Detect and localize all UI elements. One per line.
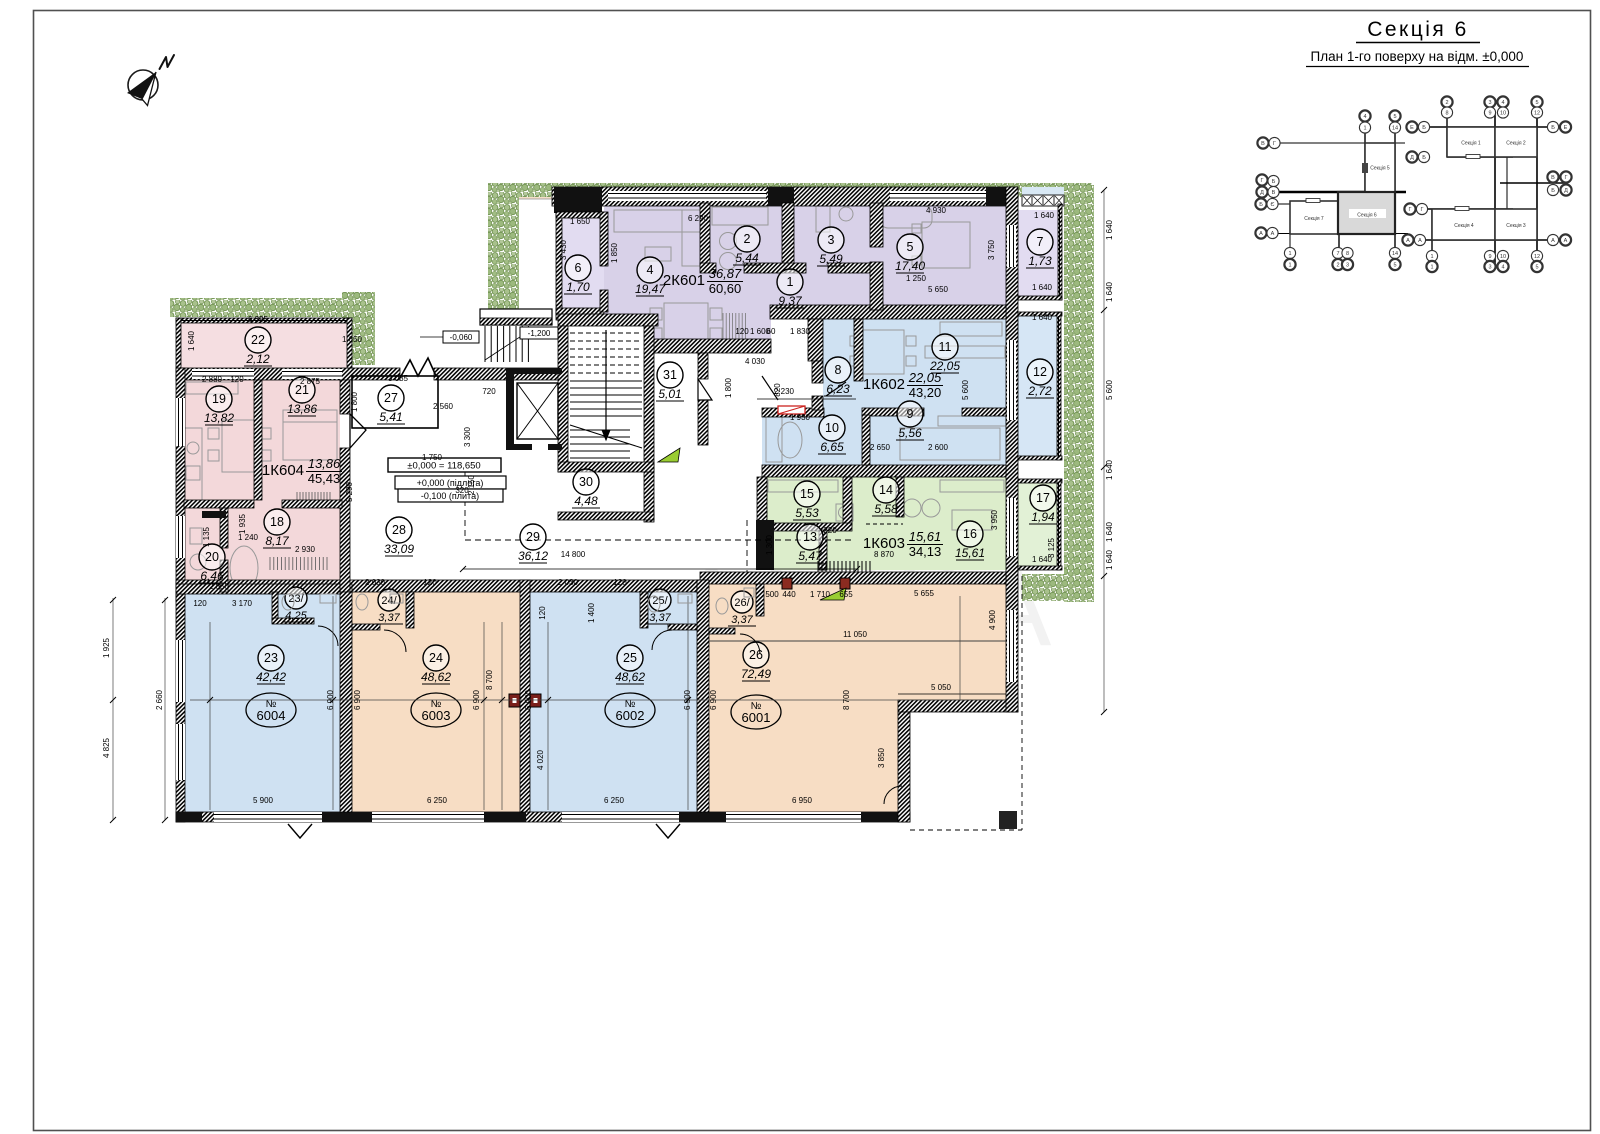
svg-text:Секція 3: Секція 3	[1506, 223, 1526, 229]
svg-text:8 700: 8 700	[485, 669, 494, 690]
svg-text:2К601: 2К601	[663, 272, 705, 289]
svg-text:3 950: 3 950	[990, 509, 999, 530]
svg-text:17,40: 17,40	[895, 259, 925, 273]
svg-text:6,23: 6,23	[826, 382, 850, 396]
svg-text:500: 500	[765, 590, 779, 599]
svg-text:Д: Д	[1564, 188, 1568, 194]
svg-text:2 660: 2 660	[155, 689, 164, 710]
svg-text:Д: Д	[1260, 190, 1264, 196]
svg-text:1 650: 1 650	[570, 217, 591, 226]
svg-text:5: 5	[1393, 263, 1396, 269]
svg-text:9: 9	[1488, 254, 1491, 260]
svg-text:8: 8	[1445, 111, 1448, 117]
svg-text:2,72: 2,72	[1027, 384, 1052, 398]
svg-text:22,05: 22,05	[908, 370, 942, 385]
svg-text:1 925: 1 925	[102, 637, 111, 658]
svg-text:6 900: 6 900	[472, 689, 481, 710]
svg-text:10: 10	[1500, 111, 1506, 117]
svg-text:Е: Е	[1410, 125, 1414, 131]
svg-text:45,43: 45,43	[308, 471, 341, 486]
svg-text:-0,060: -0,060	[450, 333, 473, 342]
svg-text:4,25: 4,25	[285, 610, 307, 622]
svg-text:2,12: 2,12	[245, 352, 270, 366]
svg-text:Г: Г	[1273, 141, 1276, 147]
svg-text:14 800: 14 800	[561, 550, 586, 559]
svg-text:720: 720	[482, 387, 496, 396]
svg-text:17: 17	[1036, 491, 1050, 505]
svg-text:Б: Б	[1551, 188, 1555, 194]
svg-text:14: 14	[1392, 251, 1398, 257]
svg-text:25/: 25/	[652, 595, 668, 607]
svg-text:6,65: 6,65	[820, 440, 844, 454]
svg-text:19: 19	[212, 392, 226, 406]
svg-text:А: А	[1551, 238, 1555, 244]
svg-text:В: В	[1261, 141, 1265, 147]
svg-text:120: 120	[193, 599, 207, 608]
svg-text:4 900: 4 900	[988, 609, 997, 630]
svg-text:6 250: 6 250	[427, 796, 448, 805]
svg-text:26/: 26/	[734, 597, 750, 609]
svg-text:1 135: 1 135	[202, 526, 211, 547]
svg-text:В: В	[1551, 175, 1555, 181]
svg-text:2: 2	[1336, 263, 1339, 269]
svg-text:6002: 6002	[616, 708, 645, 723]
svg-text:48,62: 48,62	[421, 670, 451, 684]
svg-text:1: 1	[1430, 265, 1433, 271]
svg-text:5 900: 5 900	[253, 796, 274, 805]
svg-text:6003: 6003	[422, 708, 451, 723]
svg-text:3 300: 3 300	[463, 426, 472, 447]
svg-text:5,47: 5,47	[798, 549, 823, 563]
svg-text:5: 5	[1535, 265, 1538, 271]
svg-text:820: 820	[773, 383, 782, 397]
svg-text:120: 120	[230, 375, 244, 384]
svg-text:120: 120	[613, 578, 627, 587]
svg-text:5,49: 5,49	[819, 252, 843, 266]
svg-text:22: 22	[251, 333, 265, 347]
svg-text:2 850: 2 850	[209, 582, 230, 591]
svg-text:2 560: 2 560	[433, 402, 454, 411]
svg-text:1 640: 1 640	[1034, 211, 1055, 220]
svg-text:34,13: 34,13	[909, 544, 942, 559]
svg-text:7: 7	[1037, 235, 1044, 249]
svg-text:4: 4	[1501, 265, 1504, 271]
svg-text:14: 14	[879, 483, 893, 497]
svg-text:5,58: 5,58	[874, 502, 898, 516]
svg-text:1: 1	[1288, 251, 1291, 257]
svg-text:6 290: 6 290	[688, 214, 709, 223]
svg-text:1 640: 1 640	[1032, 283, 1053, 292]
svg-text:4,48: 4,48	[574, 494, 598, 508]
svg-text:5: 5	[907, 240, 914, 254]
svg-text:6 250: 6 250	[604, 796, 625, 805]
svg-text:36,87: 36,87	[709, 266, 742, 281]
svg-text:6 950: 6 950	[792, 796, 813, 805]
svg-text:4 825: 4 825	[102, 737, 111, 758]
svg-text:3,37: 3,37	[649, 612, 671, 624]
svg-text:72,49: 72,49	[741, 667, 771, 681]
svg-text:5,01: 5,01	[658, 387, 681, 401]
svg-text:Д: Д	[1410, 155, 1414, 161]
svg-text:6 900: 6 900	[709, 689, 718, 710]
svg-text:440: 440	[782, 590, 796, 599]
svg-text:6 900: 6 900	[353, 689, 362, 710]
svg-text:15,61: 15,61	[909, 529, 942, 544]
svg-text:3 125: 3 125	[1047, 537, 1056, 558]
svg-text:Секція 6: Секція 6	[1357, 213, 1377, 219]
svg-text:1 935: 1 935	[238, 513, 247, 534]
svg-text:6,46: 6,46	[200, 569, 224, 583]
svg-text:1: 1	[1363, 126, 1366, 132]
svg-text:10: 10	[825, 421, 839, 435]
svg-text:1 830: 1 830	[790, 327, 811, 336]
svg-text:1 640: 1 640	[187, 330, 196, 351]
svg-text:15: 15	[800, 487, 814, 501]
svg-text:25: 25	[623, 651, 637, 665]
svg-text:120: 120	[423, 578, 437, 587]
svg-text:Секція 4: Секція 4	[1454, 223, 1474, 229]
svg-text:10: 10	[1500, 254, 1506, 260]
svg-text:А: А	[1564, 238, 1568, 244]
svg-text:Б: Б	[1551, 125, 1555, 131]
svg-text:В: В	[1272, 190, 1276, 196]
svg-text:6 900: 6 900	[326, 689, 335, 710]
svg-text:13,82: 13,82	[204, 411, 234, 425]
svg-text:14: 14	[1392, 126, 1398, 132]
svg-text:12: 12	[1534, 111, 1540, 117]
svg-text:26: 26	[749, 648, 763, 662]
svg-text:1 800: 1 800	[724, 377, 733, 398]
svg-text:3 850: 3 850	[877, 747, 886, 768]
svg-text:1 640: 1 640	[1105, 459, 1114, 480]
svg-text:Секція 7: Секція 7	[1304, 216, 1324, 222]
svg-text:1,70: 1,70	[566, 280, 590, 294]
svg-text:2 030: 2 030	[558, 578, 579, 587]
svg-text:Секція 2: Секція 2	[1506, 141, 1526, 147]
svg-text:5 650: 5 650	[928, 285, 949, 294]
svg-text:33,09: 33,09	[384, 542, 414, 556]
svg-text:5 600: 5 600	[1105, 379, 1114, 400]
svg-text:8 870: 8 870	[874, 550, 895, 559]
svg-text:31: 31	[663, 368, 677, 382]
svg-text:5,56: 5,56	[898, 426, 922, 440]
svg-text:220: 220	[823, 526, 837, 535]
svg-text:19,47: 19,47	[635, 282, 666, 296]
svg-text:Секція 6: Секція 6	[1367, 18, 1469, 41]
svg-text:2 875: 2 875	[300, 377, 321, 386]
svg-text:320: 320	[455, 486, 469, 495]
svg-text:±0,000 = 118,650: ±0,000 = 118,650	[407, 461, 480, 472]
svg-text:-1,200: -1,200	[528, 329, 551, 338]
svg-text:12: 12	[1033, 365, 1047, 379]
svg-text:18: 18	[270, 515, 284, 529]
svg-text:5 290: 5 290	[345, 481, 354, 502]
svg-text:План 1-го поверху на відм. ±0,: План 1-го поверху на відм. ±0,000	[1311, 49, 1524, 64]
svg-text:Г: Г	[1565, 175, 1568, 181]
svg-text:2 600: 2 600	[928, 443, 949, 452]
svg-text:1 710: 1 710	[810, 590, 831, 599]
svg-text:3 430: 3 430	[559, 239, 568, 260]
svg-text:2: 2	[1445, 100, 1448, 106]
svg-text:1: 1	[1430, 254, 1433, 260]
svg-text:Б: Б	[1422, 125, 1426, 131]
svg-text:Г: Г	[1409, 207, 1412, 213]
svg-text:1: 1	[787, 275, 794, 289]
svg-text:1: 1	[1288, 263, 1291, 269]
svg-text:1 300: 1 300	[765, 534, 774, 555]
svg-text:6 900: 6 900	[683, 689, 692, 710]
svg-text:3: 3	[828, 233, 835, 247]
svg-text:9: 9	[1488, 111, 1491, 117]
svg-text:20: 20	[205, 550, 219, 564]
svg-text:Е: Е	[1564, 125, 1568, 131]
svg-text:4 020: 4 020	[536, 749, 545, 770]
svg-text:8: 8	[1346, 251, 1349, 257]
svg-text:60: 60	[767, 327, 776, 336]
svg-text:8,17: 8,17	[265, 534, 290, 548]
svg-text:27: 27	[384, 391, 398, 405]
svg-text:Секція 5: Секція 5	[1370, 166, 1390, 172]
svg-text:120: 120	[538, 606, 547, 620]
svg-text:3 035: 3 035	[388, 374, 409, 383]
svg-text:4: 4	[1363, 114, 1366, 120]
svg-text:1,94: 1,94	[1031, 510, 1055, 524]
svg-text:8: 8	[835, 363, 842, 377]
svg-text:5 600: 5 600	[961, 379, 970, 400]
svg-text:Секція 1: Секція 1	[1461, 141, 1481, 147]
svg-text:13,86: 13,86	[287, 402, 317, 416]
svg-text:655: 655	[839, 590, 853, 599]
svg-text:А: А	[1259, 231, 1263, 237]
svg-text:5,53: 5,53	[795, 506, 819, 520]
svg-text:36,12: 36,12	[518, 549, 548, 563]
svg-text:Б: Б	[1422, 155, 1426, 161]
svg-text:1 640: 1 640	[1105, 219, 1114, 240]
svg-text:1К602: 1К602	[863, 376, 905, 393]
svg-text:43,20: 43,20	[909, 385, 942, 400]
svg-text:6 900: 6 900	[524, 689, 533, 710]
svg-text:1 800: 1 800	[350, 391, 359, 412]
svg-text:7: 7	[1336, 251, 1339, 257]
svg-text:1 850: 1 850	[610, 242, 619, 263]
svg-text:42,42: 42,42	[256, 670, 286, 684]
svg-text:16: 16	[963, 527, 977, 541]
svg-text:1 400: 1 400	[587, 602, 596, 623]
svg-text:2: 2	[744, 232, 751, 246]
svg-text:4 030: 4 030	[745, 357, 766, 366]
svg-text:4: 4	[647, 263, 654, 277]
svg-text:6: 6	[575, 261, 582, 275]
svg-text:А: А	[1271, 231, 1275, 237]
svg-text:28: 28	[392, 523, 406, 537]
svg-text:11 050: 11 050	[843, 630, 867, 639]
svg-text:3 170: 3 170	[232, 599, 253, 608]
svg-text:60,60: 60,60	[709, 281, 742, 296]
svg-text:1 750: 1 750	[422, 453, 443, 462]
svg-text:11: 11	[939, 340, 952, 354]
svg-text:23: 23	[264, 651, 278, 665]
svg-text:12: 12	[1534, 254, 1540, 260]
svg-text:1 640: 1 640	[1105, 521, 1114, 542]
svg-text:Г: Г	[1261, 178, 1264, 184]
svg-text:6001: 6001	[742, 710, 771, 725]
svg-text:5 655: 5 655	[914, 589, 935, 598]
svg-text:120: 120	[735, 327, 749, 336]
svg-text:3: 3	[1488, 265, 1491, 271]
svg-text:24: 24	[429, 651, 443, 665]
svg-text:9: 9	[907, 407, 914, 421]
svg-text:3: 3	[1346, 263, 1349, 269]
svg-text:Б: Б	[1272, 179, 1276, 185]
svg-text:4: 4	[1501, 100, 1504, 106]
svg-text:5: 5	[1393, 114, 1396, 120]
svg-text:13,86: 13,86	[308, 456, 341, 471]
svg-text:1 250: 1 250	[906, 274, 927, 283]
svg-text:1 930: 1 930	[790, 413, 811, 422]
svg-text:4 930: 4 930	[926, 206, 947, 215]
svg-text:8 700: 8 700	[842, 689, 851, 710]
svg-text:5,44: 5,44	[735, 251, 759, 265]
svg-text:3 750: 3 750	[987, 239, 996, 260]
svg-text:Б: Б	[1259, 202, 1263, 208]
svg-text:30: 30	[579, 475, 593, 489]
svg-text:5 050: 5 050	[931, 683, 952, 692]
svg-text:1К604: 1К604	[262, 462, 304, 479]
svg-text:А: А	[1418, 238, 1422, 244]
svg-text:А: А	[1406, 238, 1410, 244]
svg-text:1,73: 1,73	[1028, 254, 1052, 268]
svg-text:3,37: 3,37	[731, 614, 753, 626]
svg-text:1 640: 1 640	[1105, 281, 1114, 302]
svg-text:Є: Є	[1271, 202, 1275, 208]
svg-text:9,37: 9,37	[778, 294, 803, 308]
svg-text:1 640: 1 640	[1105, 549, 1114, 570]
svg-text:3: 3	[1488, 100, 1491, 106]
svg-text:3,37: 3,37	[378, 612, 400, 624]
svg-text:13: 13	[803, 530, 817, 544]
svg-text:6 395: 6 395	[248, 315, 269, 324]
svg-text:2 930: 2 930	[295, 545, 316, 554]
svg-text:2 880: 2 880	[202, 375, 223, 384]
svg-text:29: 29	[526, 530, 540, 544]
svg-text:5,41: 5,41	[379, 410, 402, 424]
svg-text:1 650: 1 650	[342, 335, 363, 344]
svg-text:15,61: 15,61	[955, 546, 985, 560]
svg-text:48,62: 48,62	[615, 670, 645, 684]
svg-text:1 640: 1 640	[1032, 313, 1053, 322]
svg-text:2 650: 2 650	[870, 443, 891, 452]
svg-text:Г: Г	[1421, 207, 1424, 213]
svg-text:5: 5	[1535, 100, 1538, 106]
svg-text:6004: 6004	[257, 708, 286, 723]
svg-text:24/: 24/	[381, 595, 397, 607]
svg-text:2 030: 2 030	[365, 578, 386, 587]
